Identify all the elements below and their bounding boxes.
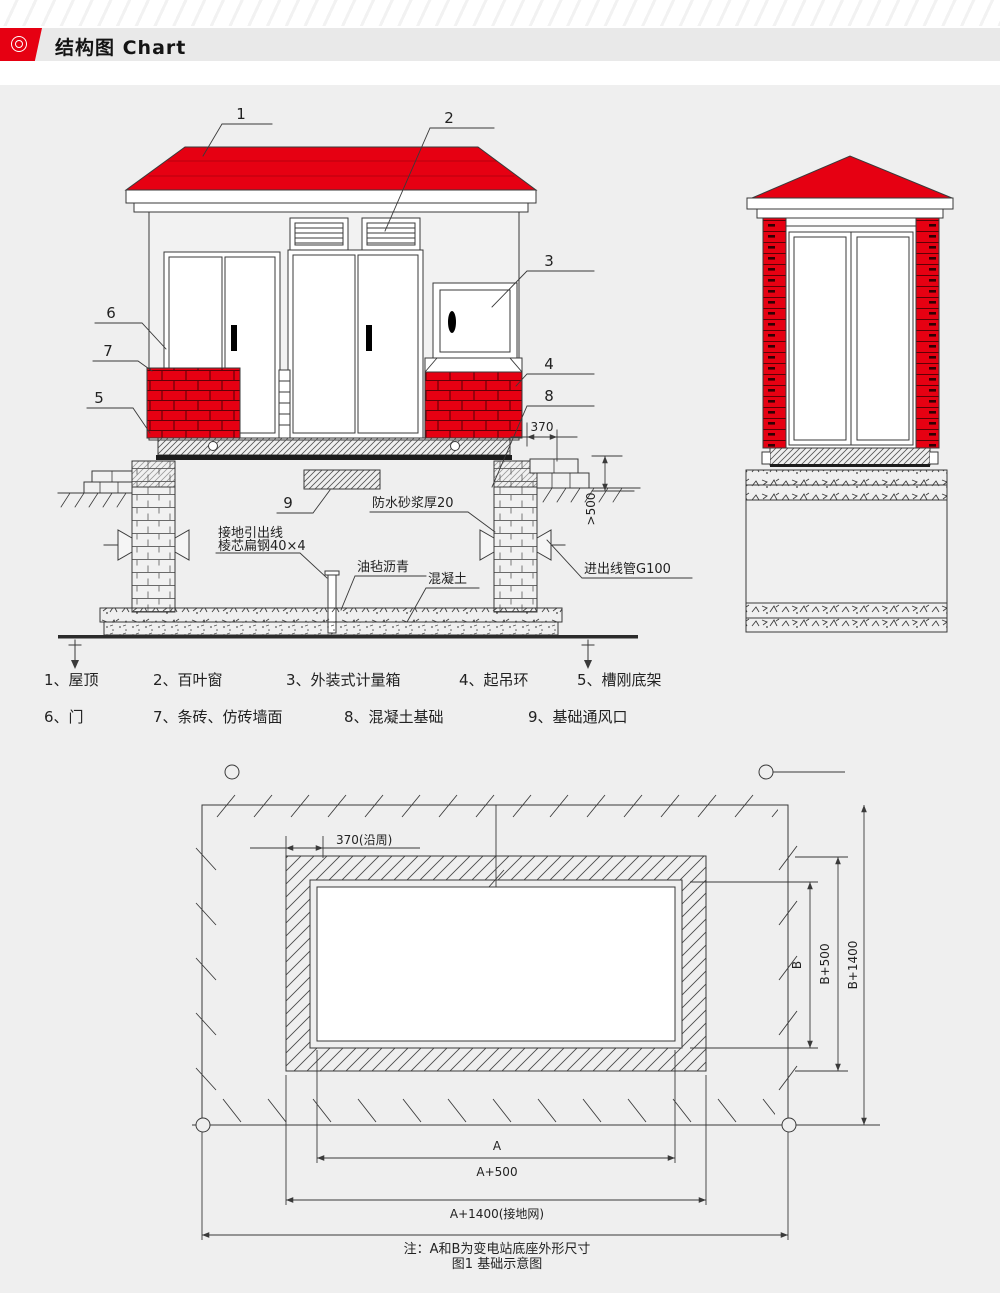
dim-a1400-label: A+1400(接地网) bbox=[450, 1206, 544, 1221]
decorative-stripe-band bbox=[0, 0, 1000, 26]
dim-370-plan-label: 370(沿周) bbox=[336, 833, 392, 847]
lifting-ring bbox=[451, 442, 460, 451]
channel-steel-base bbox=[156, 438, 512, 460]
ann-grounding-lead-line2: 棱芯扁钢40×4 bbox=[218, 538, 306, 554]
ground-electrode-bottom-right bbox=[782, 1118, 796, 1132]
roof-fascia-upper bbox=[126, 190, 536, 203]
page-title: 结构图 Chart bbox=[55, 33, 186, 60]
ground-electrode-top-left bbox=[225, 765, 239, 779]
callout-4: 4 bbox=[544, 355, 554, 373]
legend-item-door: 6、门 bbox=[44, 708, 84, 726]
ground-baseline bbox=[58, 635, 638, 639]
louver-vent-right bbox=[362, 218, 420, 250]
catalog-page: 结构图 Chart bbox=[0, 0, 1000, 1293]
dim-a-label: A bbox=[493, 1139, 502, 1153]
legend-item-metering-box: 3、外装式计量箱 bbox=[286, 671, 401, 689]
callout-2: 2 bbox=[444, 109, 454, 127]
cable-chase bbox=[279, 370, 290, 438]
callout-9: 9 bbox=[283, 494, 293, 512]
dim-a500-label: A+500 bbox=[476, 1165, 517, 1179]
target-icon bbox=[11, 36, 27, 52]
callout-6: 6 bbox=[106, 304, 116, 322]
brick-wall-left bbox=[147, 368, 240, 438]
callout-3: 3 bbox=[544, 252, 554, 270]
figure-caption: 图1 基础示意图 bbox=[452, 1256, 542, 1272]
brick-wall-right bbox=[425, 372, 522, 438]
side-fascia-lower bbox=[757, 209, 943, 218]
legend-item-brick-wall: 7、条砖、仿砖墙面 bbox=[153, 708, 283, 726]
lifting-ring bbox=[209, 442, 218, 451]
front-elevation-view: 1 2 3 4 5 6 7 8 9 370 >500 bbox=[58, 105, 692, 669]
foundation-plan-view: 370(沿周) B B+500 B+1400 A A+500 A+1400(接地… bbox=[192, 765, 880, 1272]
meter-window bbox=[448, 311, 456, 333]
ann-waterproof-mortar: 防水砂浆厚20 bbox=[372, 495, 454, 511]
side-door bbox=[789, 232, 913, 445]
louver-vent-left bbox=[290, 218, 348, 250]
side-channel-base bbox=[762, 448, 938, 467]
door-handle bbox=[231, 325, 237, 351]
legend: 1、屋顶 2、百叶窗 3、外装式计量箱 4、起吊环 5、槽刚底架 6、门 7、条… bbox=[44, 671, 662, 726]
side-elevation-view bbox=[746, 156, 953, 632]
side-roof bbox=[752, 156, 952, 198]
concrete-strip-base-layer bbox=[104, 622, 558, 635]
callout-8: 8 bbox=[544, 387, 554, 405]
ground-anchor-left bbox=[69, 640, 81, 669]
ann-conduit-g100: 进出线管G100 bbox=[584, 562, 671, 577]
dim-b500-label: B+500 bbox=[818, 943, 832, 984]
dim-370-plan bbox=[250, 836, 420, 858]
footing-left bbox=[58, 471, 132, 507]
dim-b1400-label: B+1400 bbox=[846, 941, 860, 990]
foundation-vent bbox=[304, 470, 380, 489]
door-middle bbox=[288, 250, 423, 438]
metering-box-sill bbox=[425, 358, 522, 372]
dim-gt500-label: >500 bbox=[584, 493, 598, 526]
ann-asphalt-felt: 油毡沥青 bbox=[357, 560, 409, 575]
concrete-strip-asphalt-layer bbox=[100, 608, 562, 622]
legend-item-channel-base: 5、槽刚底架 bbox=[577, 671, 662, 689]
side-brick-pillar-right bbox=[916, 218, 939, 448]
foundation-pillar-left bbox=[132, 461, 175, 612]
foundation-inner-opening bbox=[317, 887, 675, 1041]
dim-gt500 bbox=[592, 456, 634, 491]
roof-fascia-lower bbox=[134, 203, 528, 212]
ground-electrode-bottom-left bbox=[196, 1118, 210, 1132]
side-foundation bbox=[746, 470, 947, 632]
legend-item-foundation-vent: 9、基础通风口 bbox=[528, 708, 628, 726]
callout-7: 7 bbox=[103, 342, 113, 360]
legend-item-roof: 1、屋顶 bbox=[44, 671, 99, 689]
ground-electrode-top-right bbox=[759, 765, 773, 779]
ann-concrete: 混凝土 bbox=[428, 571, 467, 587]
side-fascia-upper bbox=[747, 198, 953, 209]
legend-item-lifting-ring: 4、起吊环 bbox=[459, 671, 529, 689]
legend-item-louver: 2、百叶窗 bbox=[153, 671, 223, 689]
foundation-pillar-right bbox=[494, 461, 537, 612]
dim-b-label: B bbox=[790, 961, 804, 969]
ground-anchor-right bbox=[582, 640, 594, 669]
technical-drawing-area: 1 2 3 4 5 6 7 8 9 370 >500 bbox=[0, 85, 1000, 1293]
side-brick-pillar-left bbox=[763, 218, 786, 448]
roof bbox=[126, 147, 536, 190]
dim-370-front-label: 370 bbox=[531, 420, 554, 434]
callout-5: 5 bbox=[94, 389, 104, 407]
callout-1: 1 bbox=[236, 105, 246, 123]
legend-item-concrete-foundation: 8、混凝土基础 bbox=[344, 708, 444, 726]
door-handle bbox=[366, 325, 372, 351]
structure-diagram-svg: 1 2 3 4 5 6 7 8 9 370 >500 bbox=[0, 85, 1000, 1293]
plan-note: 注：A和B为变电站底座外形尺寸 bbox=[404, 1241, 591, 1257]
